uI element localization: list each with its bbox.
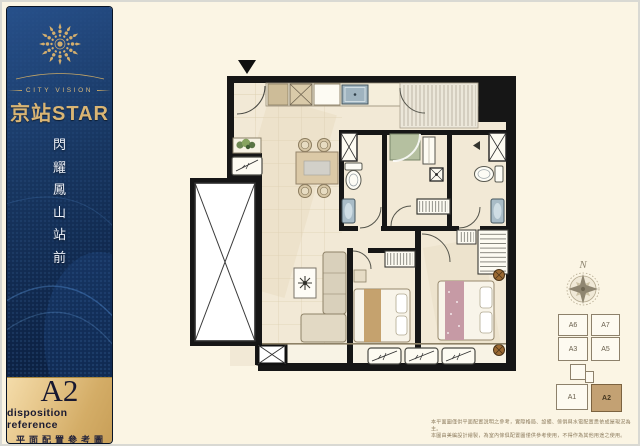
unit-badge: A2 disposition reference 平面配置參考圖 [7,377,112,443]
starburst-logo-icon [37,21,83,67]
cabinet-hatched [417,199,450,214]
keyplan-unit-a5: A5 [591,337,620,361]
building-keyplan: A6 A7 A3 A5 A1 A2 [550,308,636,420]
keyplan-unit-a6: A6 [558,314,588,336]
divider [97,90,111,91]
compass-north-label: N [578,259,587,271]
wall-art [294,268,316,298]
keyplan-unit-a3: A3 [558,337,588,361]
slogan-char: 耀 [53,157,66,180]
keyplan-core [570,364,586,380]
unit-code: A2 [41,376,79,406]
disclaimer-line-2: 本圖由美編設計繪製，為室內傢俱配置圖僅供參考使用，不得作為其他用途之使用。 [431,433,638,440]
sink-icon [491,199,504,223]
arc-decoration [12,72,108,80]
laundry-box-icon [430,168,443,181]
keyplan-unit-a1: A1 [556,384,588,410]
disclaimer-line-1: 本平面圖僅供平面配置說明之參考，實際格局、設備、傢俱與水電配置悉依成屋現況為主。 [431,419,638,433]
planter [233,138,261,153]
lamp-icon [494,270,505,281]
keyplan-unit-a7: A7 [591,314,620,336]
unit-subtitle-en: disposition reference [7,407,112,431]
slogan-char: 鳳 [53,179,66,202]
entry [234,60,265,121]
slogan-char: 山 [53,202,66,225]
sink-icon [342,199,355,223]
wardrobe-hatched [385,251,415,267]
keyplan-unit-a2-highlighted: A2 [591,384,622,412]
ac-outdoor-unit-icon [368,348,401,364]
toilet-icon [475,166,504,182]
closet-slatted [478,230,508,274]
brand-sidebar: CITY VISION 京站STAR 閃 耀 鳳 山 站 前 A2 dispos… [7,7,112,443]
slogan-char: 前 [53,247,66,270]
toilet-icon [345,163,362,190]
keyplan-core [585,371,594,383]
lamp-icon [494,345,505,356]
brand-tagline: CITY VISION [26,87,93,94]
slogan-char: 站 [53,224,66,247]
ac-outdoor-unit-icon [442,348,475,364]
divider [8,90,22,91]
unit-subtitle-zh: 平面配置參考圖 [12,433,107,444]
slogan-char: 閃 [53,134,66,157]
kitchen-sink-icon [342,85,368,104]
vertical-slogan: 閃 耀 鳳 山 站 前 [7,134,112,269]
service-balcony [400,83,478,128]
shaft-box [258,345,286,364]
brand-name: 京站STAR [7,97,112,126]
disclaimer-text: 本平面圖僅供平面配置說明之參考，實際格局、設備、傢俱與水電配置悉依成屋現況為主。… [431,419,638,440]
ac-unit-icon [232,157,262,175]
compass-rose-icon: N [567,259,599,305]
bed-master [438,281,494,340]
entry-marker-icon [238,60,256,74]
brochure-page: N [0,0,640,446]
ac-outdoor-unit-icon [405,348,438,364]
void-area [195,183,255,341]
bed-middle [354,289,410,342]
brand-logo-block: CITY VISION 京站STAR [7,7,112,126]
